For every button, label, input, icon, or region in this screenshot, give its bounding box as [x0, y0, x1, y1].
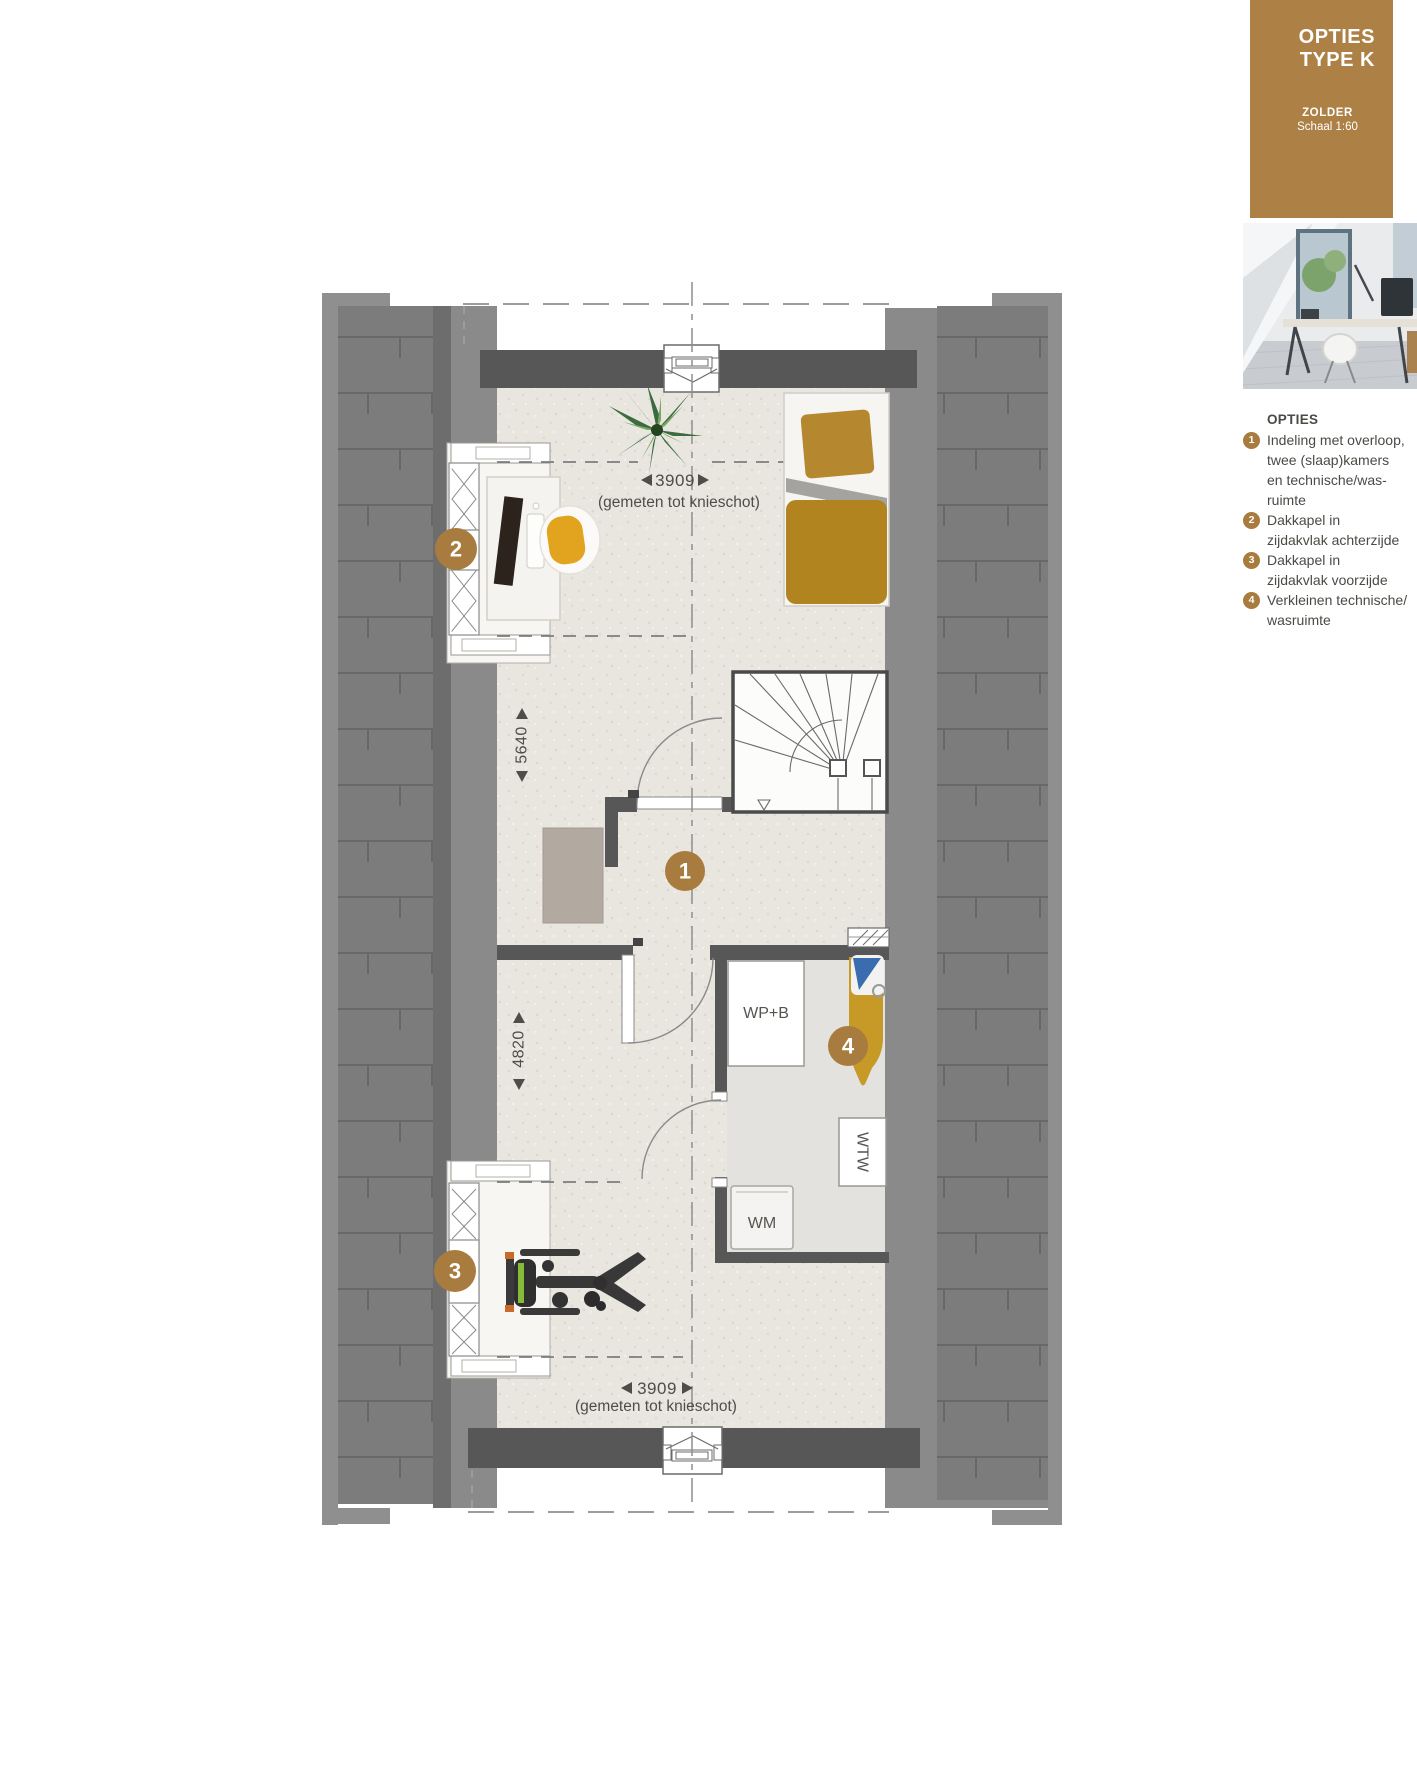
dimension-top-width-value: 3909 — [655, 471, 695, 490]
heat-pump-boiler-unit: WP+B — [728, 961, 804, 1066]
louvre-vent — [848, 928, 889, 947]
legend-item-3-line: zijdakvlak voorzijde — [1267, 570, 1388, 590]
marker-3: 3 — [434, 1250, 476, 1292]
legend-item-1-badge: 1 — [1243, 432, 1260, 449]
legend-item-1-line: en technische/was- — [1267, 470, 1405, 490]
floor-plan: WP+B WTW WM 3909 (gemeten tot knieschot)… — [0, 0, 1417, 1772]
washing-machine-label: WM — [748, 1215, 776, 1232]
legend-item-4-line: Verkleinen technische/ — [1267, 590, 1407, 610]
legend-item-2-line: zijdakvlak achterzijde — [1267, 530, 1399, 550]
legend-item-4-line: wasruimte — [1267, 610, 1407, 630]
roof-plane-right — [885, 293, 1062, 1525]
legend-item-3: 3 Dakkapel in zijdakvlak voorzijde — [1243, 550, 1413, 590]
staircase — [733, 672, 887, 812]
rug — [543, 828, 603, 923]
desk-chair — [540, 506, 600, 574]
legend-item-3-line: Dakkapel in — [1267, 550, 1388, 570]
legend-item-2-badge: 2 — [1243, 512, 1260, 529]
sidebar-title-line2: TYPE K — [1280, 49, 1375, 72]
legend-item-1: 1 Indeling met overloop, twee (slaap)kam… — [1243, 430, 1413, 510]
marker-2-number: 2 — [450, 537, 462, 562]
heat-recovery-label: WTW — [854, 1132, 871, 1173]
heat-pump-label: WP+B — [743, 1005, 789, 1022]
marker-4: 4 — [828, 1026, 868, 1066]
dimension-bottom-width-value: 3909 — [637, 1379, 677, 1398]
dimension-lower-depth-value: 4820 — [511, 1030, 528, 1068]
legend-item-2: 2 Dakkapel in zijdakvlak achterzijde — [1243, 510, 1413, 550]
marker-1-number: 1 — [679, 859, 691, 884]
legend-title: OPTIES — [1267, 410, 1413, 430]
sidebar-header: OPTIES TYPE K ZOLDER Schaal 1:60 — [1250, 0, 1393, 218]
dimension-bottom-width-note: (gemeten tot knieschot) — [575, 1398, 737, 1415]
bed — [784, 393, 889, 606]
marker-3-number: 3 — [449, 1259, 461, 1284]
legend-item-4: 4 Verkleinen technische/ wasruimte — [1243, 590, 1413, 630]
sidebar-scale-label: Schaal 1:60 — [1280, 120, 1375, 134]
heat-recovery-unit: WTW — [839, 1118, 886, 1186]
legend-item-4-badge: 4 — [1243, 592, 1260, 609]
legend-item-1-line: ruimte — [1267, 490, 1405, 510]
dimension-upper-depth-value: 5640 — [514, 726, 531, 764]
legend-item-1-line: Indeling met overloop, — [1267, 430, 1405, 450]
legend-item-3-badge: 3 — [1243, 552, 1260, 569]
dimension-top-width-note: (gemeten tot knieschot) — [598, 494, 760, 511]
page: WP+B WTW WM 3909 (gemeten tot knieschot)… — [0, 0, 1417, 1772]
marker-4-number: 4 — [842, 1034, 855, 1059]
interior-photo — [1243, 223, 1417, 389]
sidebar-floor-label: ZOLDER — [1280, 106, 1375, 120]
options-legend: OPTIES 1 Indeling met overloop, twee (sl… — [1243, 410, 1413, 630]
marker-1: 1 — [665, 851, 705, 891]
marker-2: 2 — [435, 528, 477, 570]
interior-photo-art — [1243, 223, 1417, 389]
sidebar-title-line1: OPTIES — [1280, 26, 1375, 49]
legend-item-1-line: twee (slaap)kamers — [1267, 450, 1405, 470]
washing-machine: WM — [731, 1186, 793, 1249]
legend-item-2-line: Dakkapel in — [1267, 510, 1399, 530]
